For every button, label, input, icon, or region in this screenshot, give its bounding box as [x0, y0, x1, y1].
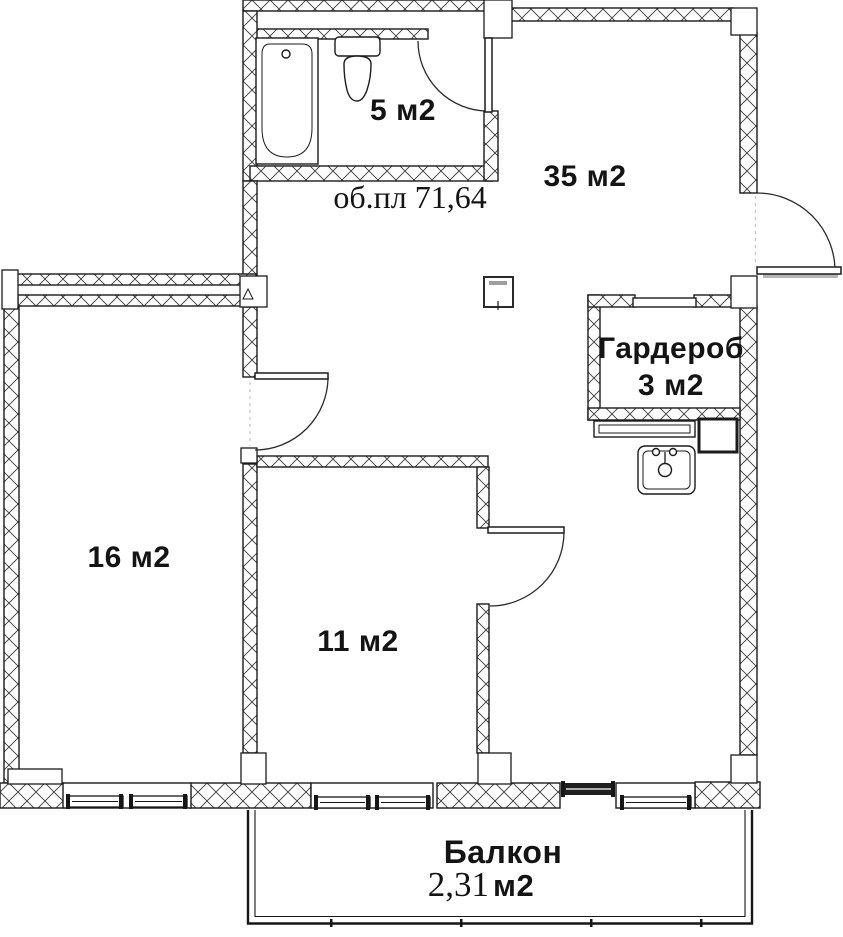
wall	[243, 181, 257, 276]
wall	[4, 306, 19, 783]
small-room-area-label: 11 м2	[317, 625, 398, 658]
wall	[243, 0, 506, 11]
entrance-door	[756, 193, 842, 278]
wall	[243, 464, 257, 753]
window	[620, 795, 691, 810]
bathtub-icon	[256, 38, 318, 164]
balcony-area-label: 2,31 м2	[428, 865, 534, 904]
total-area-label: об.пл 71,64	[333, 179, 486, 215]
wall	[243, 307, 257, 377]
small-room-door	[488, 527, 564, 606]
bedroom-door	[250, 373, 328, 450]
pier	[241, 753, 266, 784]
pier	[484, 0, 512, 38]
bedroom-area-label: 16 м2	[87, 541, 170, 574]
floor-plan-drawing: 5 м2 об.пл 71,64 35 м2 Гардероб 3 м2 16 …	[0, 0, 843, 937]
wall	[694, 295, 733, 307]
pier	[241, 448, 257, 463]
toilet-icon	[335, 37, 380, 101]
pier	[8, 769, 62, 784]
pier	[478, 753, 511, 784]
bathroom-area-label: 5 м2	[370, 94, 436, 127]
pier	[240, 276, 267, 307]
wall	[8, 274, 256, 285]
wall	[740, 33, 757, 193]
wall	[257, 456, 488, 467]
sink-icon	[638, 446, 695, 494]
wall	[740, 306, 757, 755]
wall	[0, 783, 64, 808]
windows	[63, 781, 695, 810]
window	[129, 794, 187, 809]
wardrobe-name-label: Гардероб	[598, 332, 744, 365]
pier	[2, 270, 18, 309]
dark-window	[561, 781, 615, 797]
living-area-label: 35 м2	[543, 160, 626, 193]
wall	[18, 295, 256, 306]
wall	[484, 111, 498, 181]
pier	[731, 755, 757, 783]
wall	[505, 8, 733, 21]
pier	[731, 276, 757, 308]
wall	[437, 783, 560, 808]
counter	[594, 421, 695, 437]
window	[314, 795, 370, 810]
window	[66, 794, 123, 809]
wardrobe-area-label: 3 м2	[638, 369, 704, 402]
wall	[695, 782, 760, 808]
wall	[588, 295, 635, 307]
wall	[477, 467, 489, 528]
wall	[243, 11, 257, 181]
wall	[190, 783, 311, 808]
electrical-panel-symbol	[484, 277, 513, 310]
wardrobe-opening-panel	[633, 298, 696, 307]
floor-plan: 5 м2 об.пл 71,64 35 м2 Гардероб 3 м2 16 …	[0, 0, 843, 937]
wall	[477, 604, 489, 753]
pier	[731, 8, 757, 35]
duct-shaft	[699, 419, 737, 452]
window	[375, 795, 430, 810]
